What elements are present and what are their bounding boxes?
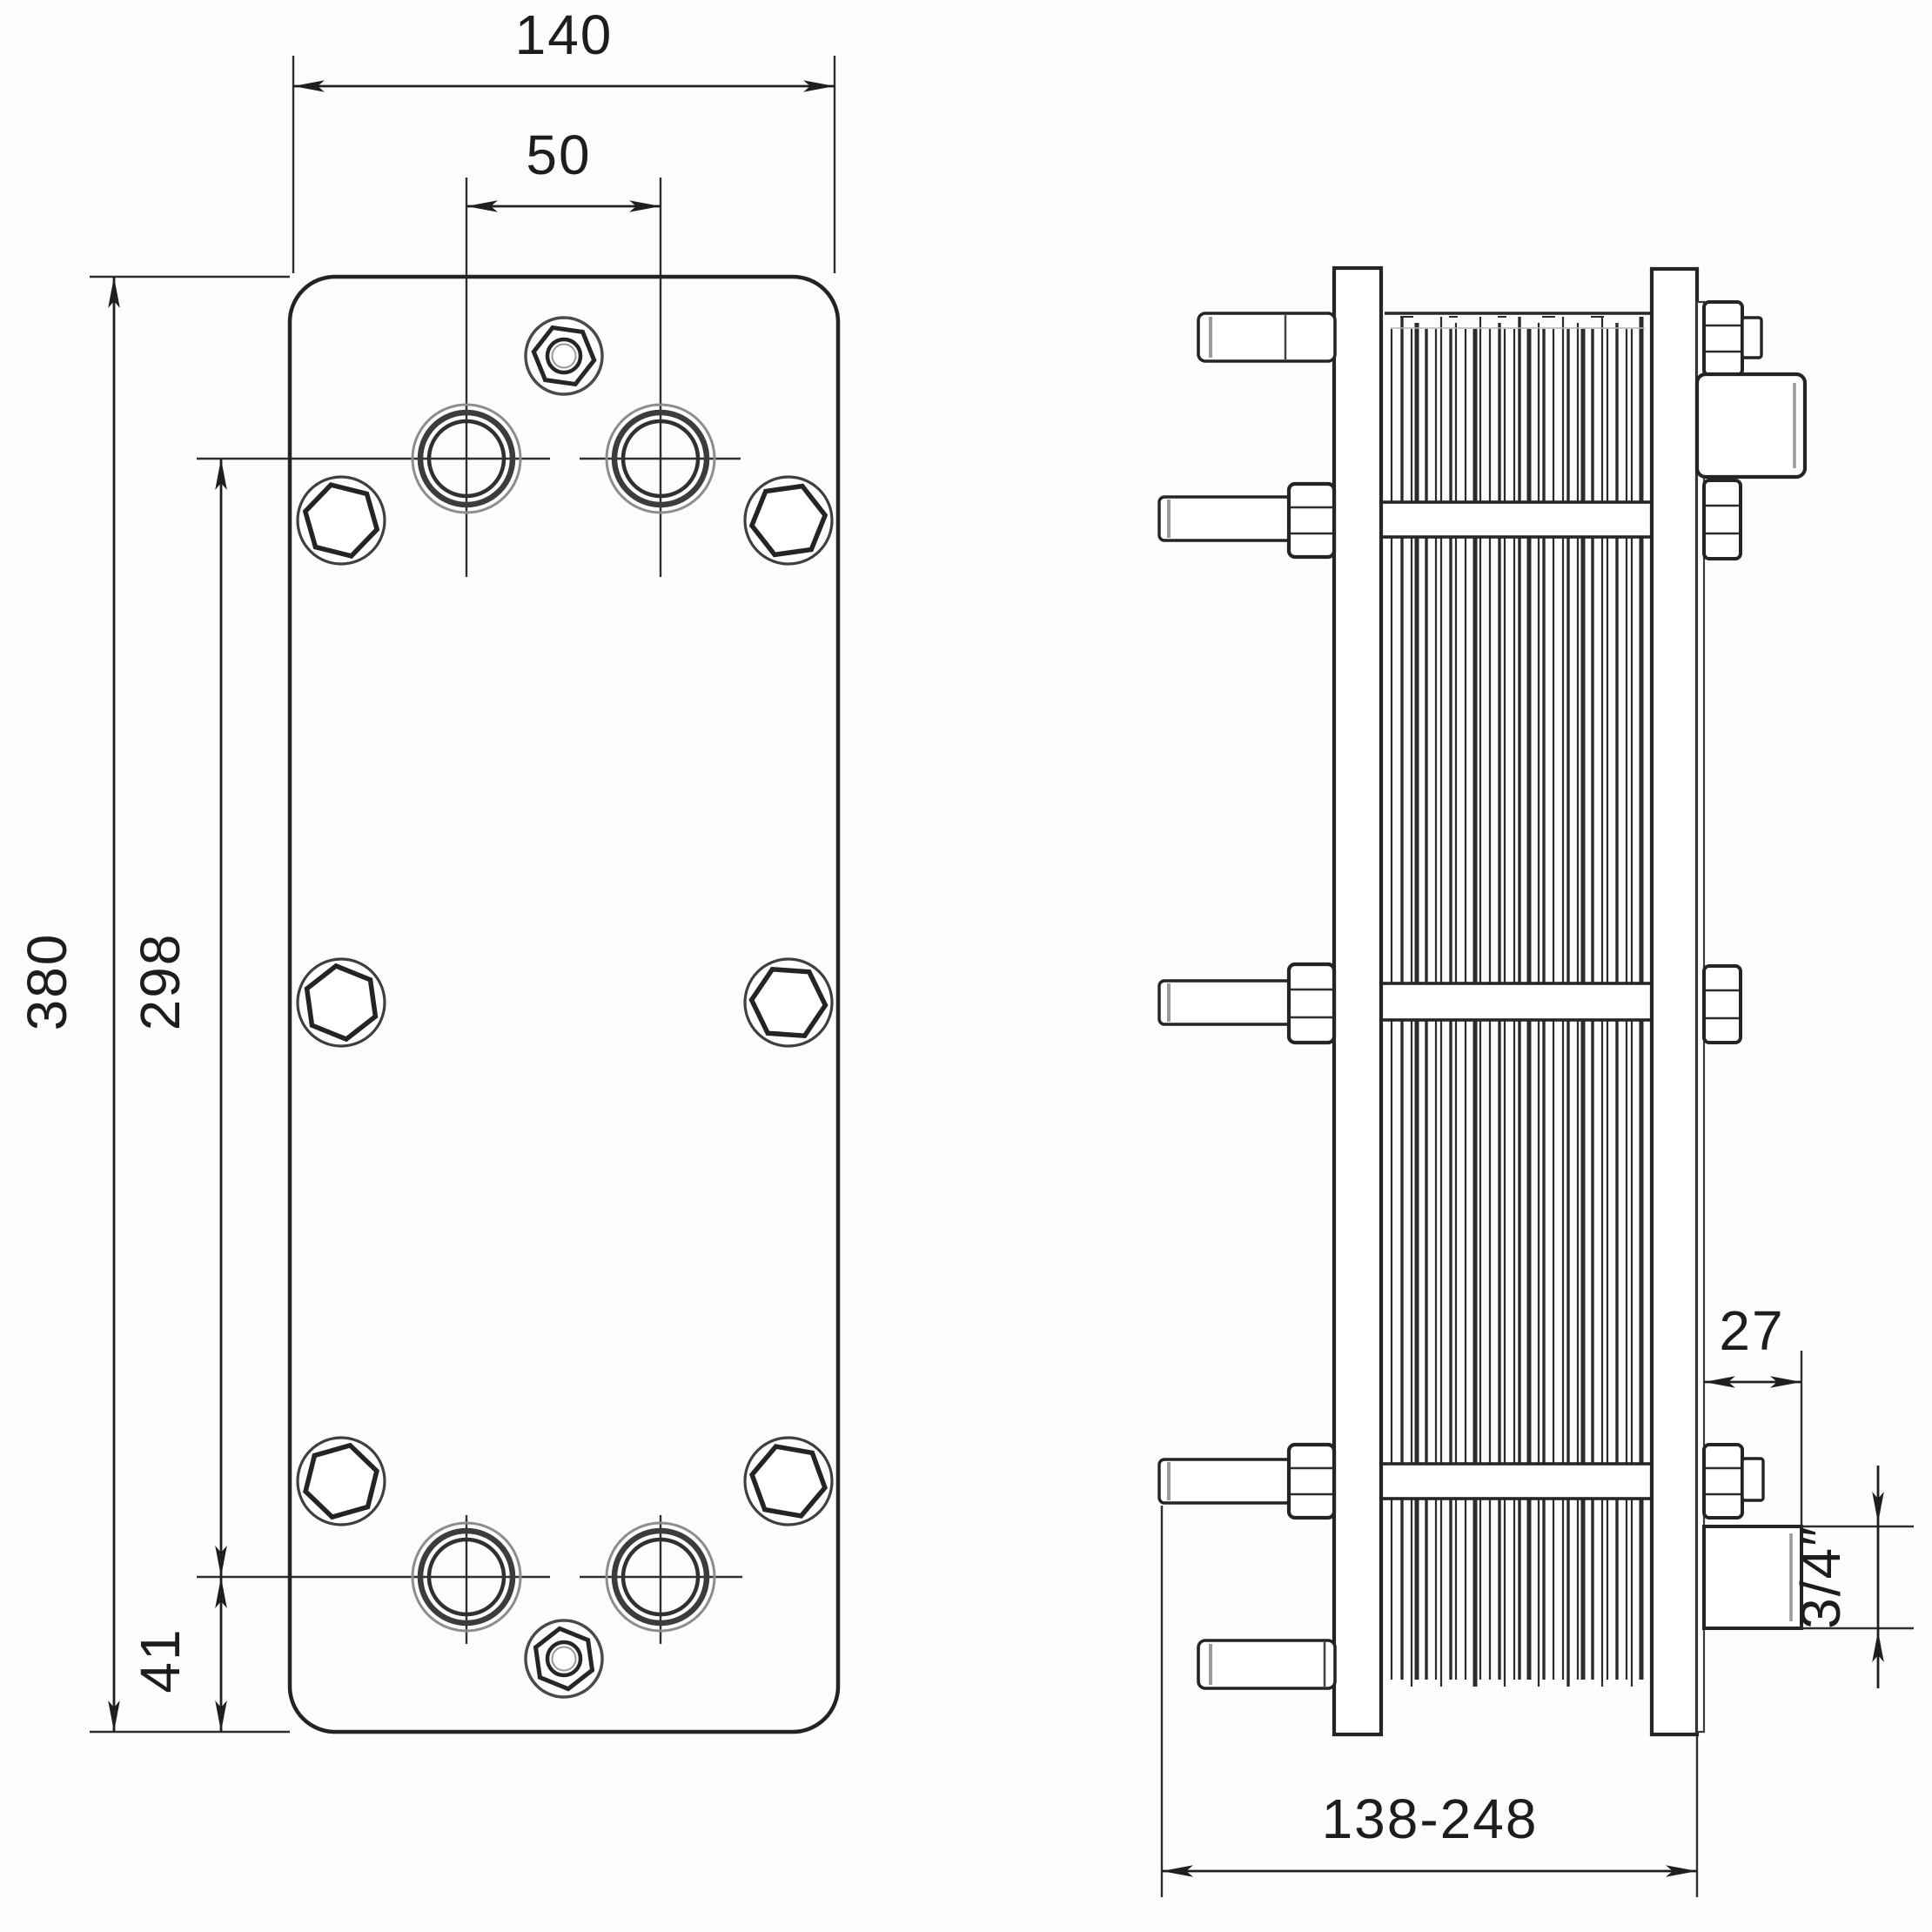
technical-drawing: 140 50 380 298 41 [0,0,1932,1932]
dim-label-138-248: 138-248 [1322,1788,1539,1850]
nut [1704,480,1741,559]
stud-bottom [1198,1640,1335,1688]
dim-label-380: 380 [16,933,78,1031]
dim-label-140: 140 [515,3,614,66]
nut [1704,966,1741,1043]
dim-label-three-quarter-inch: 3/4″ [1789,1525,1852,1629]
mounting-bracket [1697,374,1805,477]
bolt-head [298,477,385,564]
tie-bar-top [1381,502,1652,537]
bolt-head [745,959,832,1046]
center-bolt-top [526,318,602,394]
fixed-frame-plate [1334,268,1381,1734]
pressure-plate [1652,269,1697,1734]
bolt-head [745,1438,832,1525]
dim-label-27: 27 [1719,1299,1784,1362]
stud-top [1198,313,1335,361]
drawing-page: 140 50 380 298 41 [0,0,1932,1932]
center-bolt-bottom [526,1620,602,1697]
dim-label-298: 298 [129,933,191,1031]
bolt-head [298,1438,385,1525]
tie-bar-middle [1379,983,1652,1020]
left-studs [1159,313,1335,1688]
dim-label-50: 50 [526,124,591,186]
bolt-head [298,959,385,1046]
bolt-head [745,477,832,564]
dim-label-41: 41 [129,1627,191,1693]
tie-bar-bottom [1381,1464,1652,1499]
